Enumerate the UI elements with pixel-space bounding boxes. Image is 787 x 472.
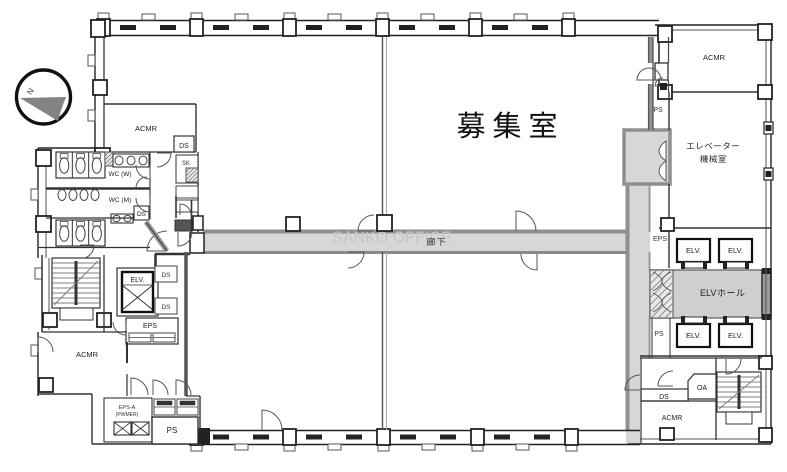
svg-text:EPS: EPS — [653, 236, 667, 243]
svg-text:ELV.: ELV. — [728, 331, 743, 340]
svg-text:ELV.: ELV. — [686, 246, 701, 255]
svg-text:PS: PS — [653, 107, 663, 114]
svg-text:DS: DS — [161, 304, 171, 311]
svg-text:DS: DS — [161, 272, 171, 279]
svg-text:ACMR: ACMR — [703, 53, 726, 62]
svg-text:DS: DS — [137, 211, 147, 218]
svg-text:EPS-A: EPS-A — [119, 405, 136, 411]
svg-text:(PWMER): (PWMER) — [116, 412, 139, 418]
svg-text:PS: PS — [167, 426, 178, 435]
svg-text:WC (W): WC (W) — [108, 171, 131, 178]
svg-text:SK: SK — [182, 161, 190, 167]
svg-text:ELV: ELV — [700, 288, 716, 298]
svg-text:ELV.: ELV. — [686, 331, 701, 340]
svg-text:DS: DS — [179, 143, 189, 150]
svg-text:SANKO OFFICE: SANKO OFFICE — [332, 230, 451, 247]
svg-text:ACMR: ACMR — [76, 350, 99, 359]
svg-text:ELV.: ELV. — [728, 246, 743, 255]
svg-text:ACMR: ACMR — [662, 415, 683, 422]
svg-text:WC (M): WC (M) — [109, 197, 131, 204]
svg-text:OA: OA — [697, 385, 707, 392]
svg-text:ACMR: ACMR — [135, 124, 158, 133]
svg-text:PS: PS — [654, 331, 664, 338]
svg-text:DS: DS — [659, 394, 669, 401]
svg-text:EPS: EPS — [143, 323, 157, 330]
svg-text:ELV.: ELV. — [130, 277, 144, 284]
